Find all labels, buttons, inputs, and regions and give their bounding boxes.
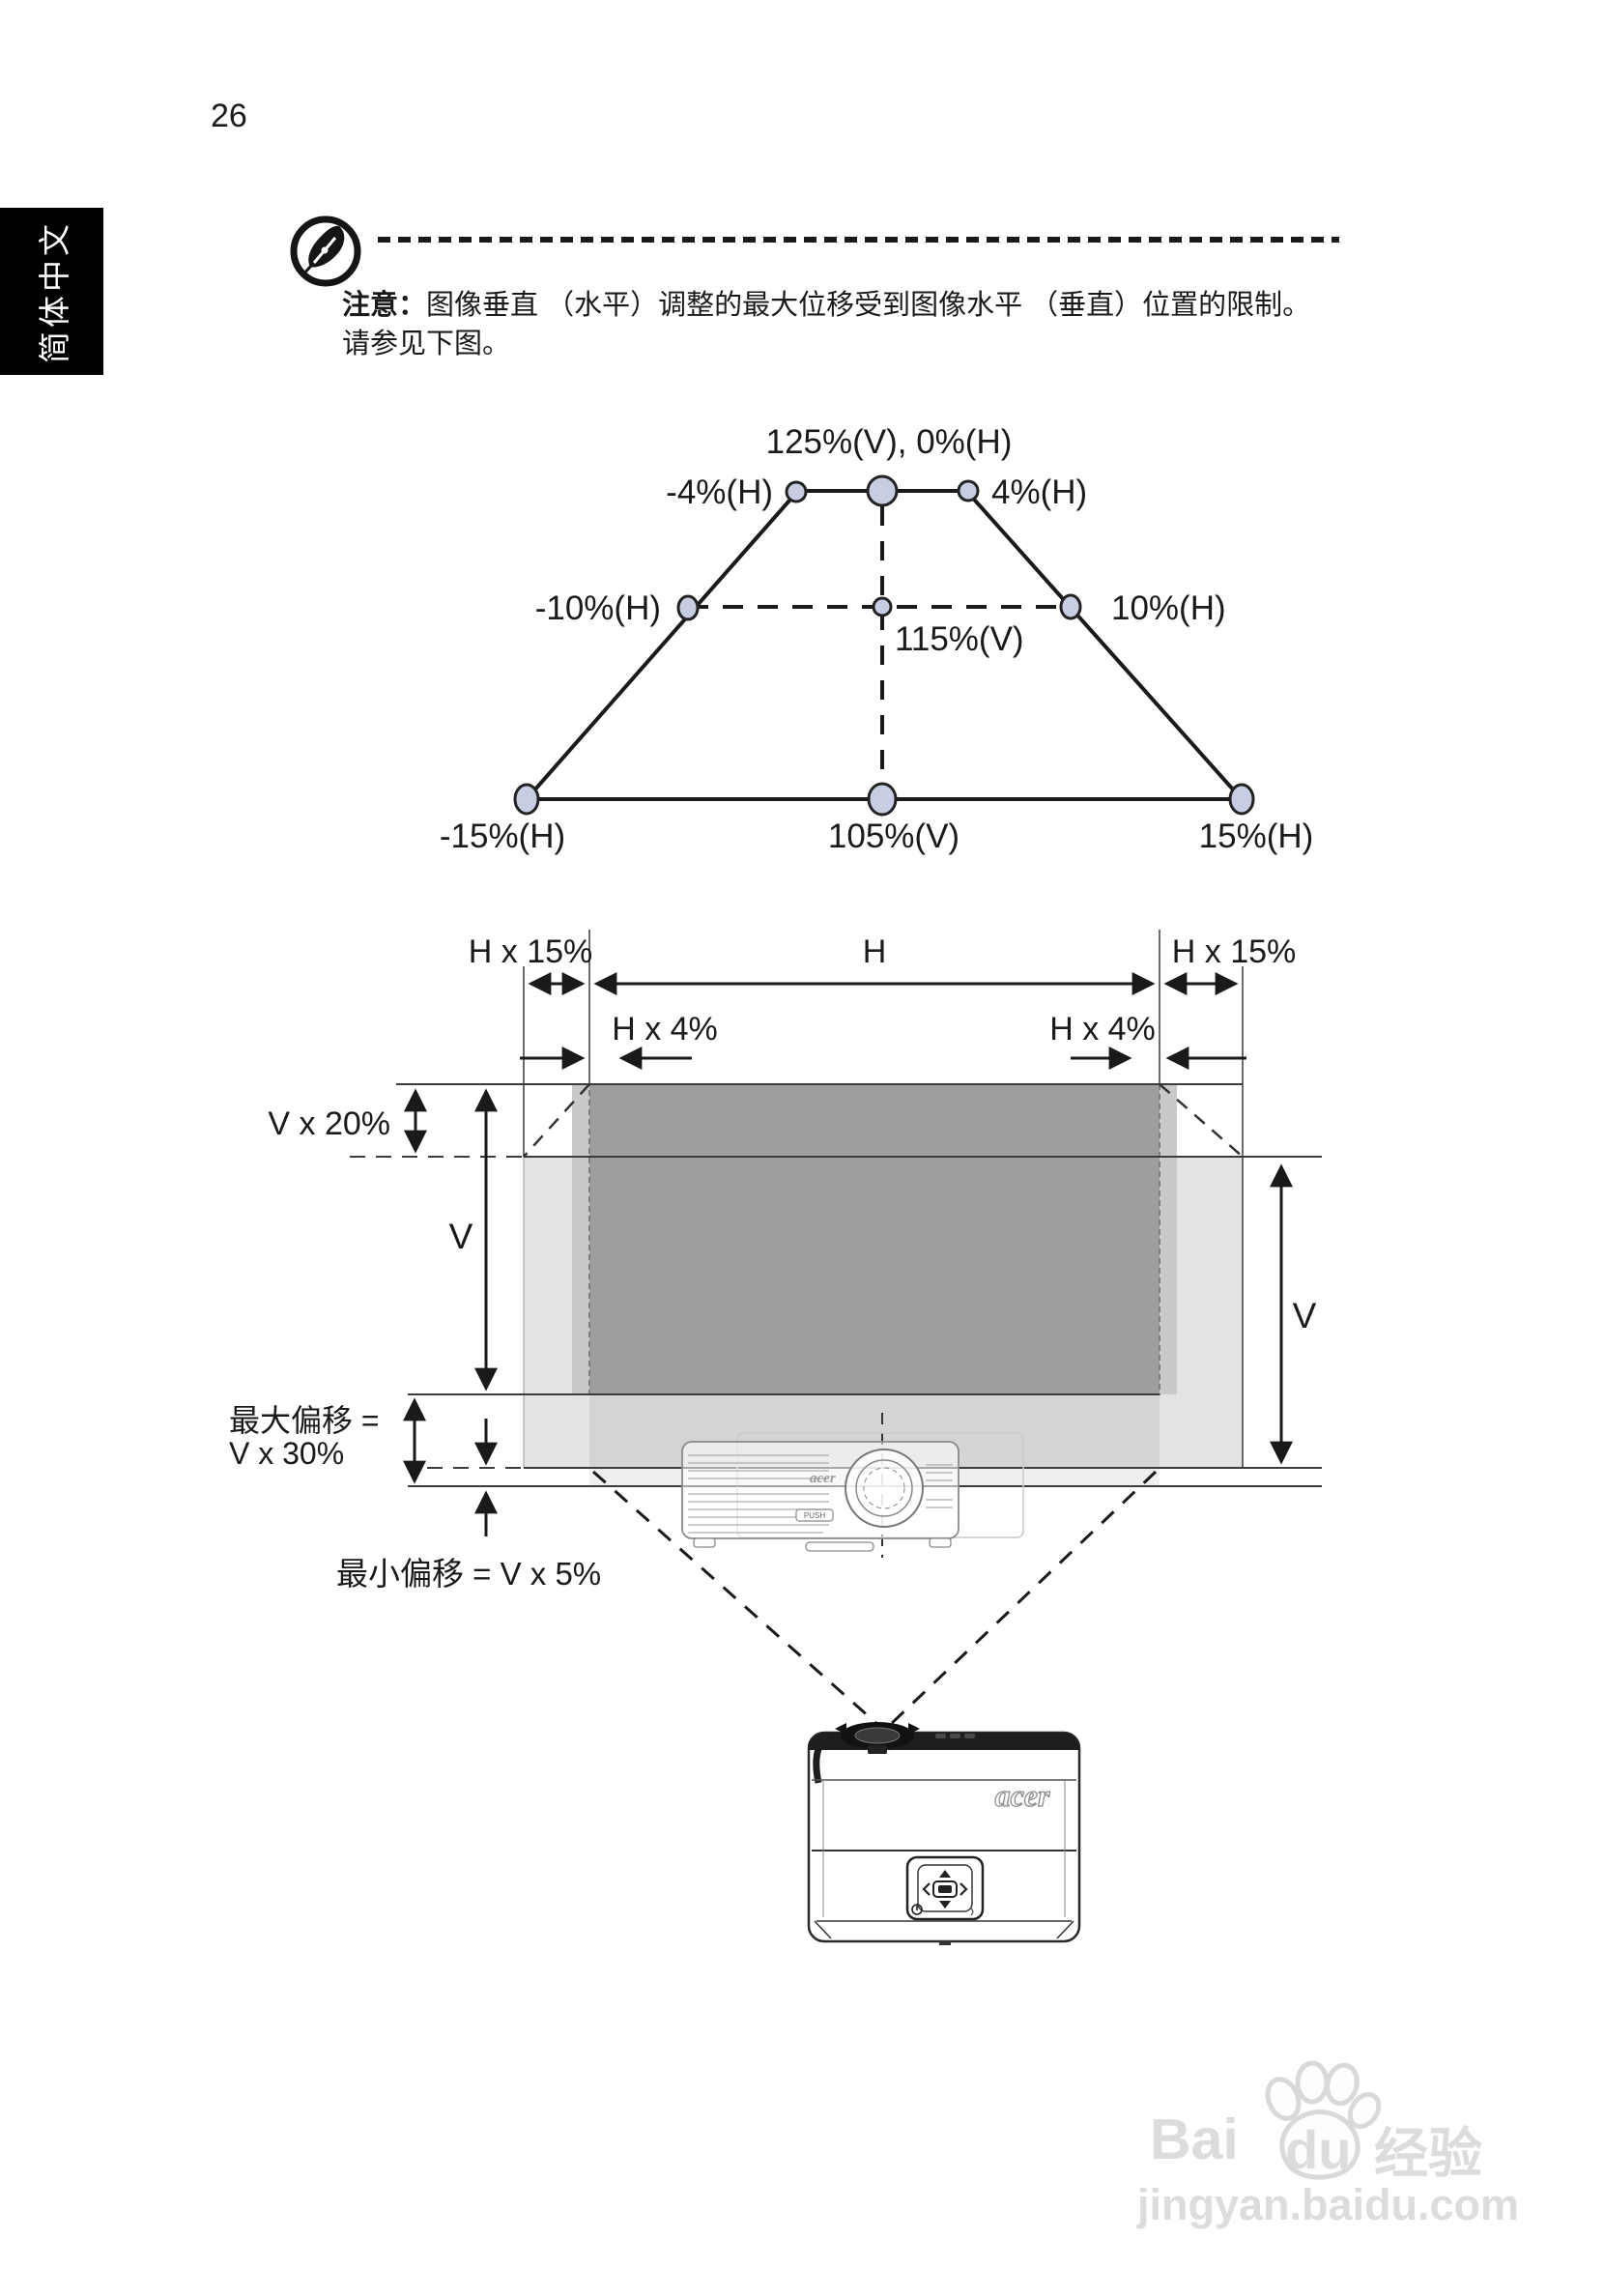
dim-label-h: H	[863, 933, 887, 971]
dim-label-h4-right: H x 4%	[1049, 1011, 1156, 1048]
dim-label-h15-left: H x 15%	[469, 933, 593, 971]
manual-page: 26 简体中文 注意：图像垂直 （水平）调整的最大位移受到图像水平 （垂直）位置…	[0, 0, 1604, 2296]
trap-label-mid-right: 10%(H)	[1111, 589, 1226, 628]
dim-label-h15-right: H x 15%	[1172, 933, 1297, 971]
projector-push-label: PUSH	[798, 1511, 831, 1520]
projector-small-brand-text: acer	[810, 1471, 836, 1487]
watermark-jingyan: 经验	[1374, 2110, 1482, 2189]
projector-large-brand-text: acer	[995, 1778, 1050, 1814]
trap-label-mid-center: 115%(V)	[895, 620, 1024, 659]
watermark-bai: Bai	[1150, 2107, 1239, 2172]
trap-label-top: 125%(V), 0%(H)	[766, 423, 1013, 462]
shift-range-trapezoid	[527, 491, 1242, 799]
trap-label-bottom-left: -15%(H)	[440, 818, 565, 856]
dim-label-max-offset-1: 最大偏移 =	[229, 1396, 380, 1441]
projector-front-view	[809, 1722, 1079, 1945]
dim-label-v-left: V	[449, 1217, 473, 1257]
dim-label-max-offset-2: V x 30%	[229, 1436, 344, 1472]
screen-area-fills	[524, 1084, 1243, 1486]
dim-label-v-right: V	[1293, 1296, 1317, 1336]
diagrams-canvas	[0, 0, 1604, 2296]
trap-label-top-left: -4%(H)	[666, 474, 773, 512]
dim-label-v20: V x 20%	[268, 1105, 390, 1143]
trap-label-bottom-right: 15%(H)	[1199, 818, 1314, 856]
watermark-url: jingyan.baidu.com	[1137, 2180, 1519, 2230]
trap-label-bottom-center: 105%(V)	[828, 818, 960, 856]
dim-label-h4-left: H x 4%	[612, 1011, 718, 1048]
dim-label-min-offset: 最小偏移 = V x 5%	[336, 1548, 601, 1594]
image-rect	[589, 1084, 1160, 1394]
trap-label-mid-left: -10%(H)	[535, 589, 661, 628]
trap-label-top-right: 4%(H)	[991, 474, 1087, 512]
watermark-du: du	[1285, 2118, 1351, 2181]
